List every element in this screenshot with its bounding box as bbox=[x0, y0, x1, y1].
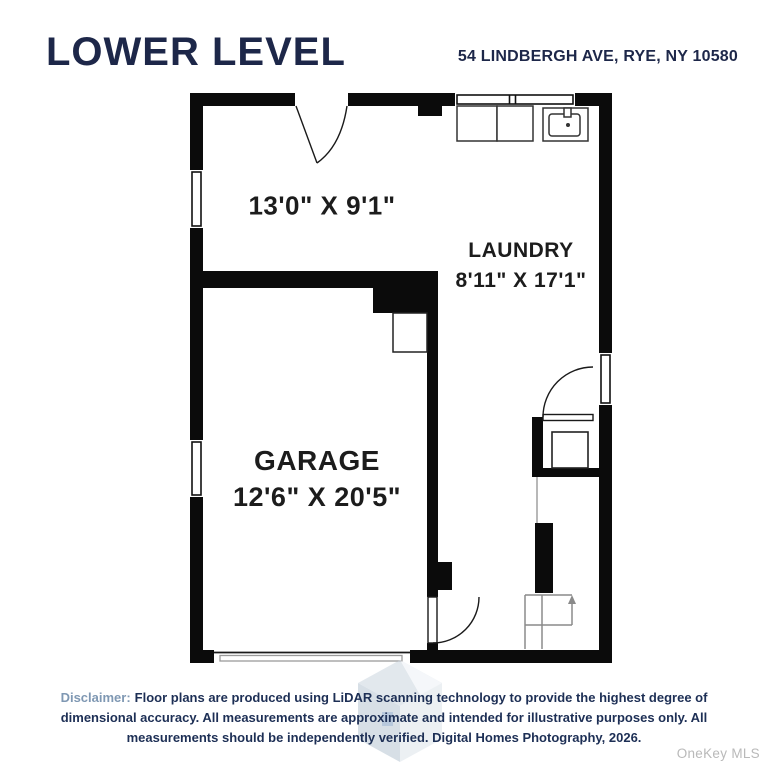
front-door-swing-arc bbox=[317, 106, 347, 163]
room-name: LAUNDRY bbox=[456, 236, 587, 266]
front-door-leaf bbox=[296, 106, 317, 163]
room-dims: 8'11" X 17'1" bbox=[456, 266, 587, 296]
wall-stair-bar bbox=[535, 523, 553, 593]
room-label-laundry: LAUNDRY 8'11" X 17'1" bbox=[456, 236, 587, 296]
onekey-mls-watermark: OneKey MLS bbox=[677, 746, 760, 761]
floor-plan-drawing bbox=[190, 93, 612, 663]
room-dims: 12'6" X 20'5" bbox=[233, 479, 401, 515]
floor-plan: 13'0" X 9'1" LAUNDRY 8'11" X 17'1" GARAG… bbox=[190, 93, 612, 663]
room-dims: 13'0" X 9'1" bbox=[248, 191, 395, 222]
window-left-garage bbox=[192, 442, 201, 495]
water-heater bbox=[552, 432, 588, 468]
room-label-garage: GARAGE 12'6" X 20'5" bbox=[233, 443, 401, 515]
stairs-up-arrow-head bbox=[568, 595, 576, 604]
dryer bbox=[497, 106, 533, 141]
room-name: GARAGE bbox=[233, 443, 401, 479]
disclaimer: Disclaimer:Floor plans are produced usin… bbox=[40, 688, 728, 748]
window-left-frontroom bbox=[192, 172, 201, 226]
stairs bbox=[525, 595, 576, 649]
room-dimensions-front-room: 13'0" X 9'1" bbox=[248, 191, 395, 222]
window-right-laundry bbox=[601, 355, 610, 403]
wall-doorjamb-block bbox=[438, 562, 452, 590]
front-door-opening bbox=[295, 93, 348, 106]
closet-door-swing-arc bbox=[543, 367, 593, 417]
garage-hall-door-swing-arc bbox=[433, 597, 479, 643]
closet-door-leaf bbox=[543, 415, 593, 421]
disclaimer-text: Floor plans are produced using LiDAR sca… bbox=[61, 690, 708, 745]
corner-counter bbox=[393, 313, 427, 352]
property-address: 54 LINDBERGH AVE, RYE, NY 10580 bbox=[458, 48, 738, 66]
disclaimer-label: Disclaimer: bbox=[61, 690, 131, 705]
wall-below-hall-door bbox=[427, 643, 438, 650]
page-title: LOWER LEVEL bbox=[46, 30, 346, 74]
washer bbox=[457, 106, 497, 141]
closet-wall-bottom bbox=[532, 468, 599, 477]
sink-faucet bbox=[564, 108, 571, 117]
wall-garage-laundry bbox=[427, 288, 438, 597]
garage-hall-door-leaf bbox=[428, 597, 437, 643]
page: LOWER LEVEL 54 LINDBERGH AVE, RYE, NY 10… bbox=[0, 0, 768, 768]
wall-stub-top bbox=[418, 106, 442, 116]
interior-walls bbox=[203, 106, 599, 650]
sink-drain bbox=[566, 123, 570, 127]
